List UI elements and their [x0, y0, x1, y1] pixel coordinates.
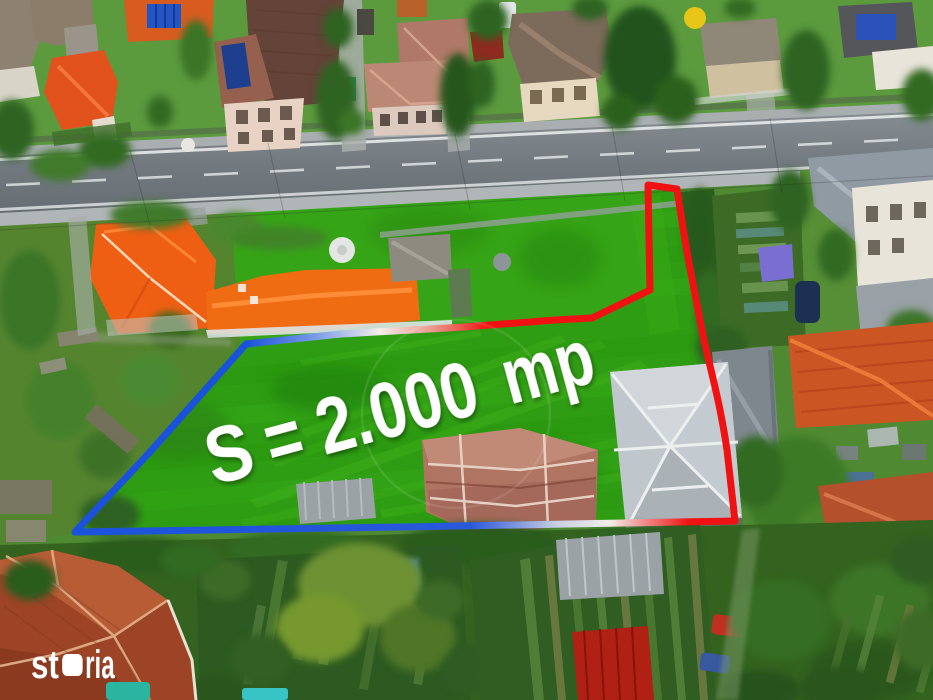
svg-text:st: st	[31, 642, 59, 687]
svg-text:ria: ria	[85, 642, 115, 687]
